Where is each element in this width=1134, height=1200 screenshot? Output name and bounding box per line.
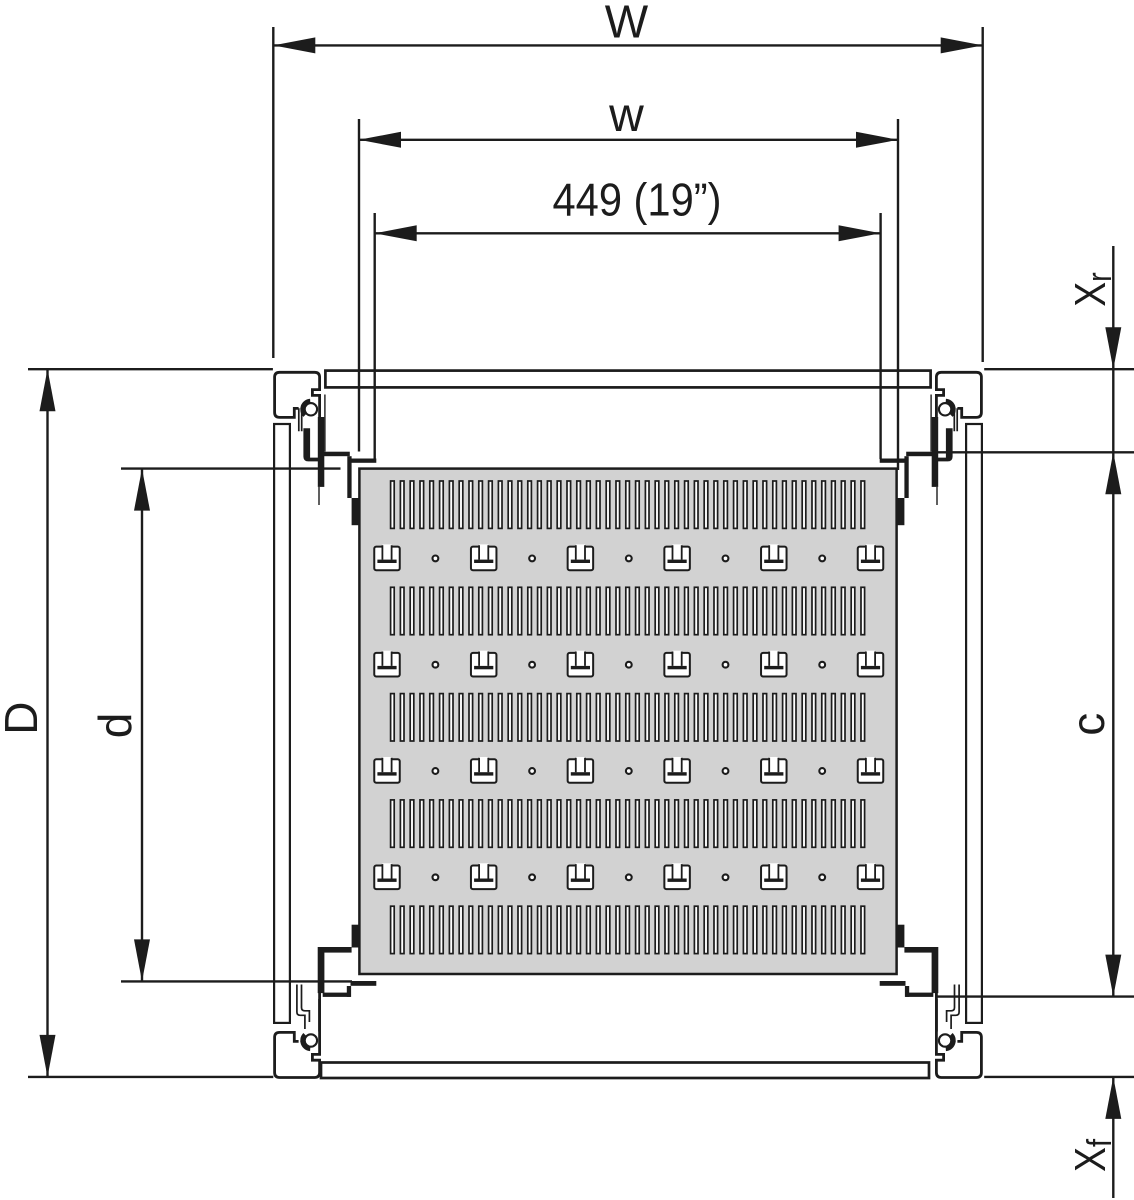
svg-text:w: w <box>608 89 644 142</box>
svg-text:D: D <box>0 702 47 735</box>
svg-text:449 (19”): 449 (19”) <box>553 174 722 226</box>
svg-text:d: d <box>89 713 141 739</box>
svg-text:c: c <box>1062 713 1114 736</box>
svg-text:W: W <box>605 0 649 48</box>
